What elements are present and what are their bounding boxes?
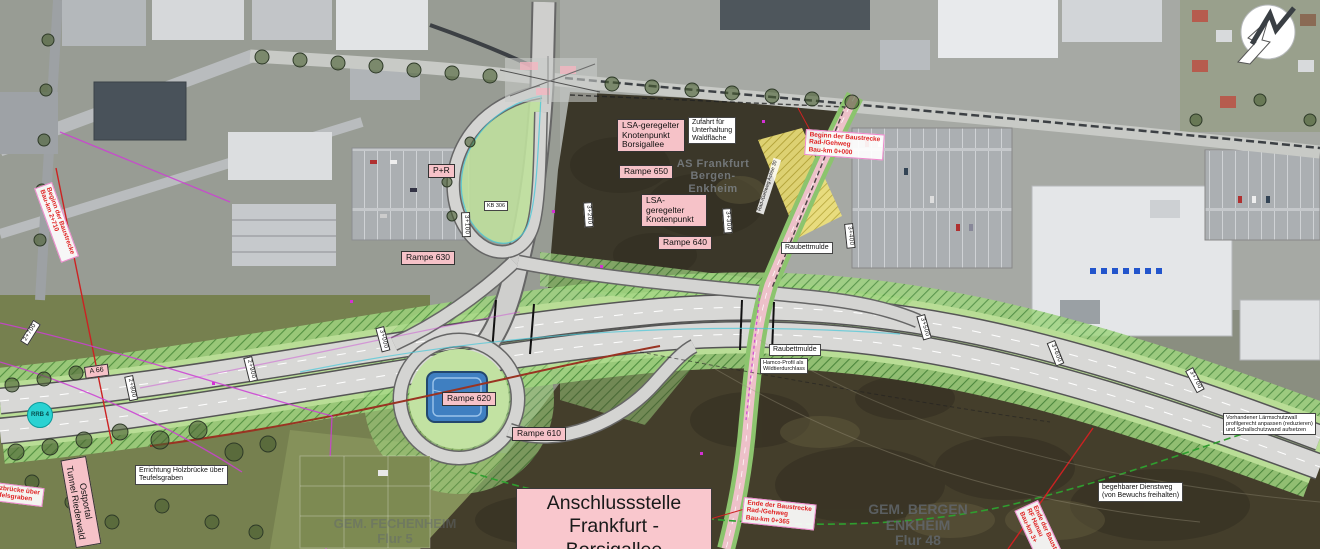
label-rampe-630: Rampe 630 (401, 251, 455, 265)
chainage-3-300: 3+300 (722, 208, 732, 234)
label-park-and-ride: P+R (428, 164, 455, 178)
signal-junction-detail (500, 56, 600, 104)
title-box: Anschlussstelle Frankfurt - Borsigallee (516, 488, 712, 549)
label-rampe-640: Rampe 640 (658, 236, 712, 250)
chainage-3-100: 3+100 (461, 212, 471, 238)
label-beginn-radweg: Beginn der Baustrecke Rad-/Gehweg Bau-km… (804, 129, 884, 160)
watermark-as-frankfurt: AS Frankfurt Bergen-Enkheim (668, 158, 758, 195)
label-dienstweg: begehbarer Dienstweg (von Bewuchs freiha… (1098, 482, 1183, 502)
label-errichtung-holzbruecke: Errichtung Holzbrücke über Teufelsgraben (135, 465, 228, 485)
district-bergen-enkheim: GEM. BERGEN ENKHEIM Flur 48 (858, 502, 978, 549)
label-rampe-610: Rampe 610 (512, 427, 566, 441)
label-raubettmulde-nord: Raubettmulde (781, 242, 833, 254)
label-lsa-borsigallee: LSA-geregelter Knotenpunkt Borsigallee (617, 119, 685, 152)
district-fechenheim: GEM. FECHENHEIM Flur 5 (320, 517, 470, 546)
label-laermschutzwall: Vorhandener Lärmschutzwall profilgerecht… (1223, 413, 1316, 435)
label-lsa-knotenpunkt: LSA-geregelter Knotenpunkt (641, 194, 707, 227)
label-hamco-profil: Hamco-Profil als Wildtierdurchlass (760, 358, 808, 374)
label-kb306: KB 306 (484, 201, 508, 211)
chainage-3-200: 3+200 (583, 202, 593, 228)
label-zufahrt-waldflaeche: Zufahrt für Unterhaltung Waldfläche (688, 117, 736, 144)
label-raubettmulde-sued: Raubettmulde (769, 344, 821, 356)
construction-plan-sheet: LSA-geregelter Knotenpunkt Borsigallee R… (0, 0, 1320, 549)
label-rampe-620: Rampe 620 (442, 392, 496, 406)
label-rampe-650: Rampe 650 (619, 165, 673, 179)
rrb4-basin-badge: RRB 4 (27, 402, 53, 428)
